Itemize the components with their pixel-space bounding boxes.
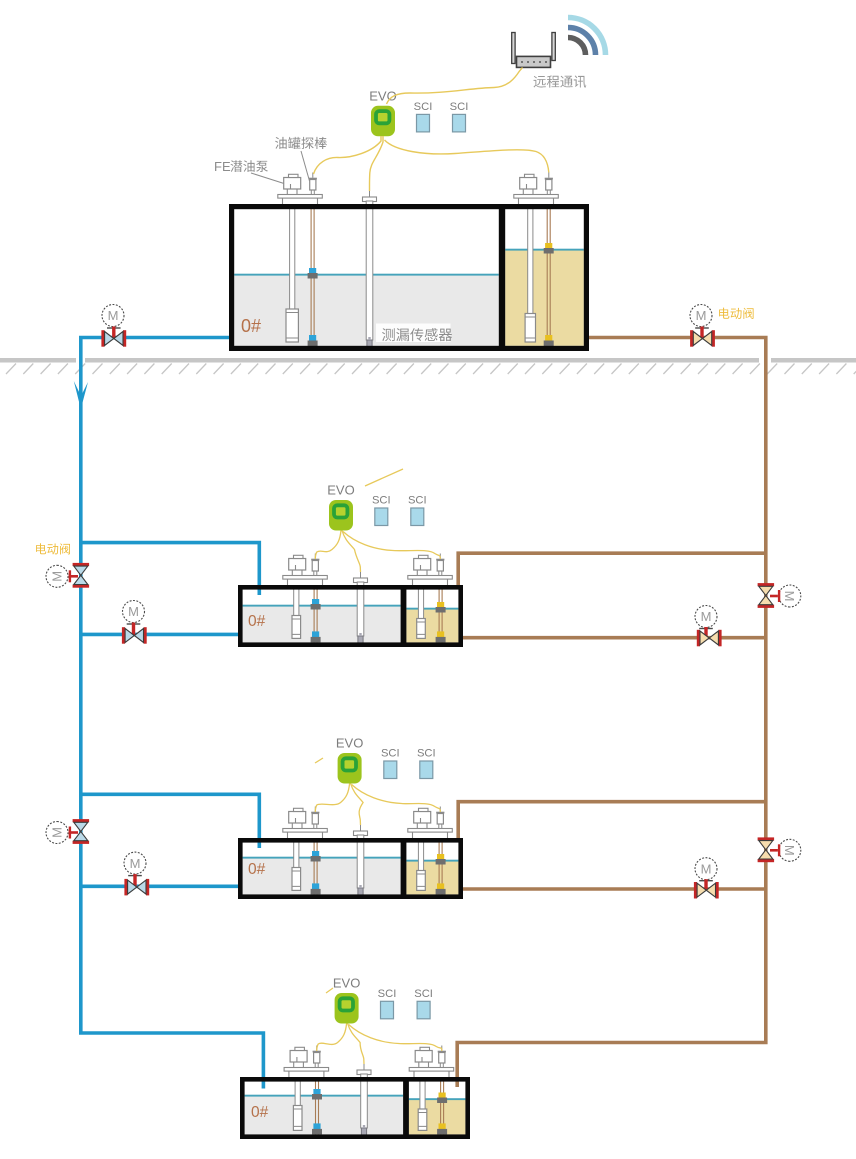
svg-text:M: M (701, 609, 712, 624)
svg-text:SCI: SCI (414, 101, 433, 113)
svg-text:0#: 0# (248, 861, 266, 878)
svg-text:SCI: SCI (372, 495, 391, 507)
svg-text:EVO: EVO (336, 736, 363, 751)
svg-text:EVO: EVO (327, 483, 354, 498)
svg-text:SCI: SCI (450, 101, 469, 113)
svg-text:0#: 0# (241, 316, 261, 336)
svg-text:0#: 0# (251, 1104, 269, 1121)
svg-text:SCI: SCI (408, 495, 427, 507)
svg-text:M: M (50, 571, 65, 582)
svg-text:M: M (50, 827, 65, 838)
svg-text:M: M (108, 308, 119, 323)
svg-text:0#: 0# (248, 613, 266, 630)
svg-text:SCI: SCI (381, 748, 400, 760)
svg-text:M: M (696, 308, 707, 323)
svg-text:M: M (701, 861, 712, 876)
svg-text:M: M (782, 591, 797, 602)
svg-text:M: M (128, 604, 139, 619)
svg-text:EVO: EVO (333, 976, 360, 991)
svg-text:M: M (782, 845, 797, 856)
svg-text:SCI: SCI (414, 988, 433, 1000)
svg-text:SCI: SCI (417, 748, 436, 760)
svg-text:M: M (130, 856, 141, 871)
svg-text:EVO: EVO (369, 88, 396, 103)
svg-text:SCI: SCI (378, 988, 397, 1000)
svg-text:FE: FE (214, 159, 231, 174)
